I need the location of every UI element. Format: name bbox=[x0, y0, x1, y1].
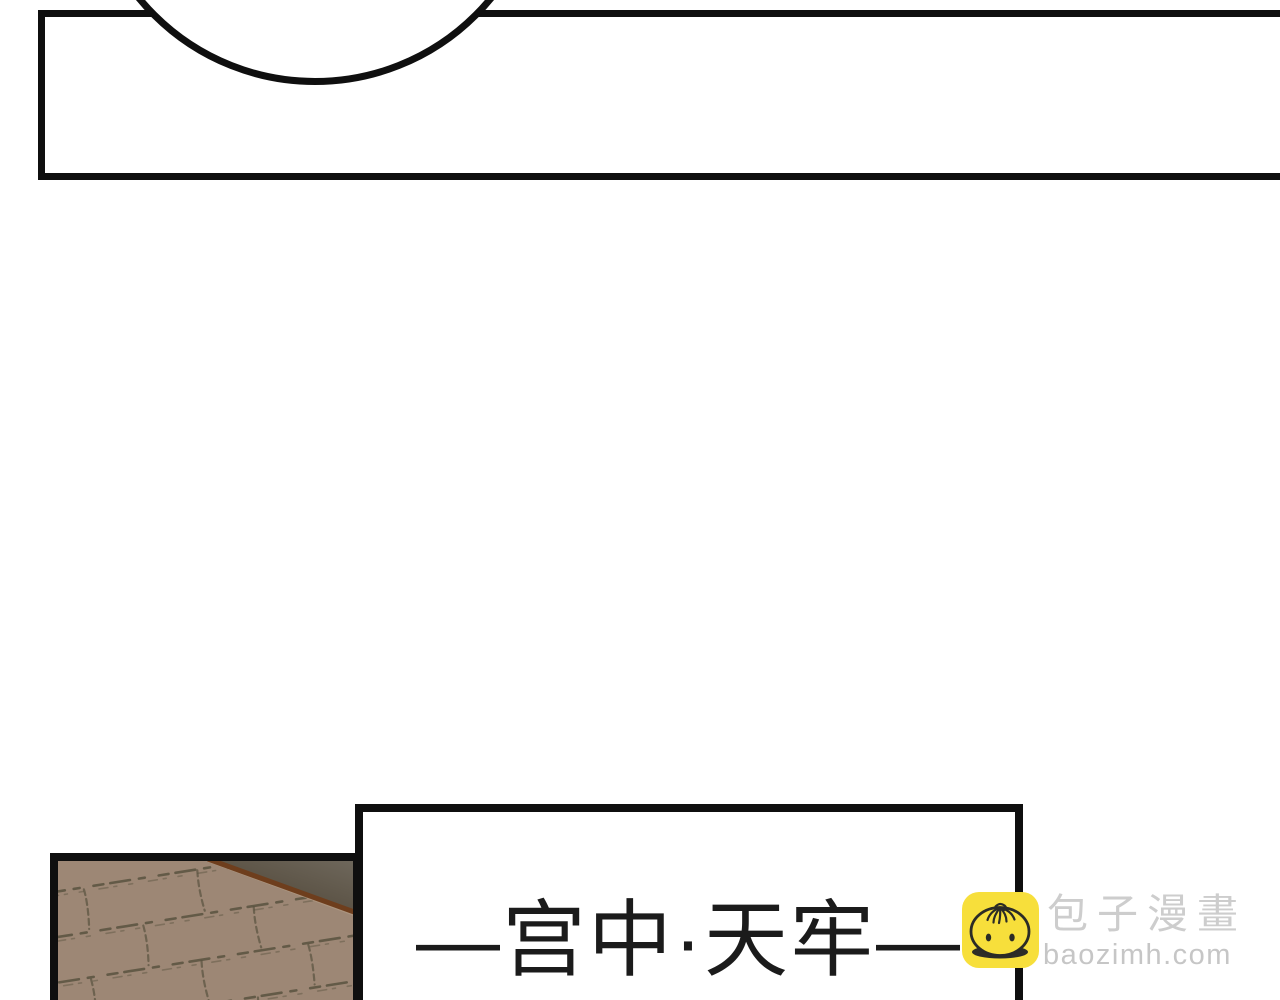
baozi-bun-icon bbox=[962, 892, 1039, 968]
watermark-site-domain: baozimh.com bbox=[1043, 941, 1232, 970]
site-watermark: 包子漫畫 baozimh.com bbox=[0, 0, 1280, 1000]
comic-page: —宫中·天牢— 包子漫畫 baozimh.com bbox=[0, 0, 1280, 1000]
watermark-site-name: 包子漫畫 bbox=[1047, 894, 1247, 935]
